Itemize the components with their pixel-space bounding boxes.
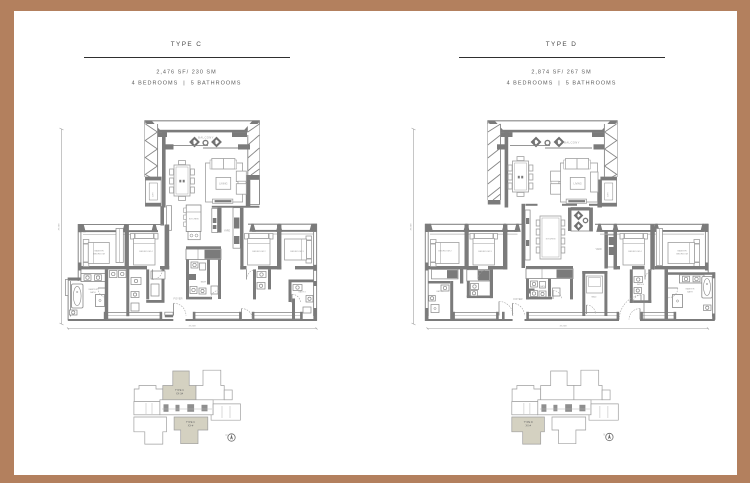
svg-text:BEDROOM 2: BEDROOM 2 xyxy=(438,251,452,253)
svg-text:4 BEDROOMS | 5 BATHROOMS: 4 BEDROOMS | 5 BATHROOMS xyxy=(132,81,242,87)
svg-text:XX.XM: XX.XM xyxy=(560,326,567,328)
svg-text:BEDROOM 2: BEDROOM 2 xyxy=(252,251,266,253)
svg-text:2,476 SF/ 230 SM: 2,476 SF/ 230 SM xyxy=(156,69,216,75)
svg-text:FOYER: FOYER xyxy=(174,297,183,301)
svg-text:BATH 3: BATH 3 xyxy=(298,291,306,294)
svg-text:XX.XM: XX.XM xyxy=(59,223,61,230)
svg-text:KITCHEN: KITCHEN xyxy=(189,219,199,221)
svg-text:XX-3#: XX-3# xyxy=(176,392,184,395)
svg-text:FOYER: FOYER xyxy=(514,297,523,301)
svg-text:KITCHEN: KITCHEN xyxy=(546,239,556,241)
svg-text:BEDROOM 4: BEDROOM 4 xyxy=(628,251,642,253)
svg-text:BATH 4: BATH 4 xyxy=(637,283,645,286)
svg-text:N: N xyxy=(226,434,228,437)
svg-text:YARD: YARD xyxy=(595,248,602,251)
svg-text:TYPE C: TYPE C xyxy=(171,41,202,48)
svg-text:2,874 SF/ 267 SM: 2,874 SF/ 267 SM xyxy=(531,69,591,75)
svg-text:XX.XM: XX.XM xyxy=(411,223,413,230)
svg-text:BALCONY: BALCONY xyxy=(564,140,580,144)
svg-text:4 BEDROOMS | 5 BATHROOMS: 4 BEDROOMS | 5 BATHROOMS xyxy=(507,81,617,87)
svg-text:MASTER: MASTER xyxy=(677,250,687,253)
svg-text:BATH: BATH xyxy=(540,285,546,288)
svg-text:BATH: BATH xyxy=(201,281,207,284)
svg-text:MASTER: MASTER xyxy=(89,288,98,291)
svg-text:BEDROOM 3: BEDROOM 3 xyxy=(290,251,304,253)
svg-text:BALCONY: BALCONY xyxy=(198,135,214,139)
svg-text:BATH 2: BATH 2 xyxy=(436,290,444,293)
svg-text:BATH: BATH xyxy=(687,291,693,294)
svg-text:XX.XM: XX.XM xyxy=(189,326,196,328)
svg-text:BEDROOM 4: BEDROOM 4 xyxy=(139,251,153,253)
svg-text:MASTER: MASTER xyxy=(94,250,104,253)
svg-text:BEDROOM: BEDROOM xyxy=(676,254,687,256)
svg-text:MASTER: MASTER xyxy=(686,288,695,291)
svg-text:YARD: YARD xyxy=(224,230,231,233)
svg-text:XX-#: XX-# xyxy=(188,424,194,427)
svg-text:MAID: MAID xyxy=(592,296,598,299)
svg-text:LIVING: LIVING xyxy=(573,182,581,185)
svg-text:XX-#: XX-# xyxy=(526,424,532,427)
svg-text:LIVING: LIVING xyxy=(219,182,227,185)
svg-text:N: N xyxy=(604,433,606,436)
svg-text:TYPE D: TYPE D xyxy=(546,41,577,48)
svg-text:BEDROOM: BEDROOM xyxy=(93,254,104,256)
svg-text:BATH: BATH xyxy=(90,291,96,294)
svg-text:BEDROOM 3: BEDROOM 3 xyxy=(478,251,492,253)
